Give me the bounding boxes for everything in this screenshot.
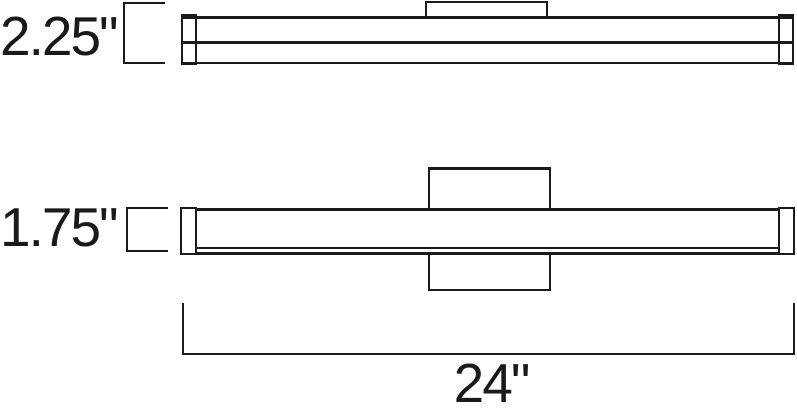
fixture-dimension-diagram: 2.25" 1.75" 24" — [0, 0, 797, 420]
width-dimension-bracket — [182, 303, 795, 355]
depth-dimension-label: 2.25" — [0, 9, 116, 64]
height-dimension-bracket — [126, 207, 168, 252]
height-dimension-label: 1.75" — [0, 200, 116, 255]
front-view-left-endcap — [180, 207, 197, 255]
width-dimension-label: 24" — [391, 356, 591, 411]
depth-dimension-bracket — [123, 2, 165, 64]
top-view-bar-housing — [181, 16, 794, 64]
top-view-left-endcap — [181, 14, 197, 65]
front-view-right-endcap — [778, 207, 795, 255]
top-view-lens-edge-line — [183, 41, 792, 44]
front-view-lens-bottom-line — [182, 247, 793, 249]
top-view-right-endcap — [778, 14, 794, 65]
